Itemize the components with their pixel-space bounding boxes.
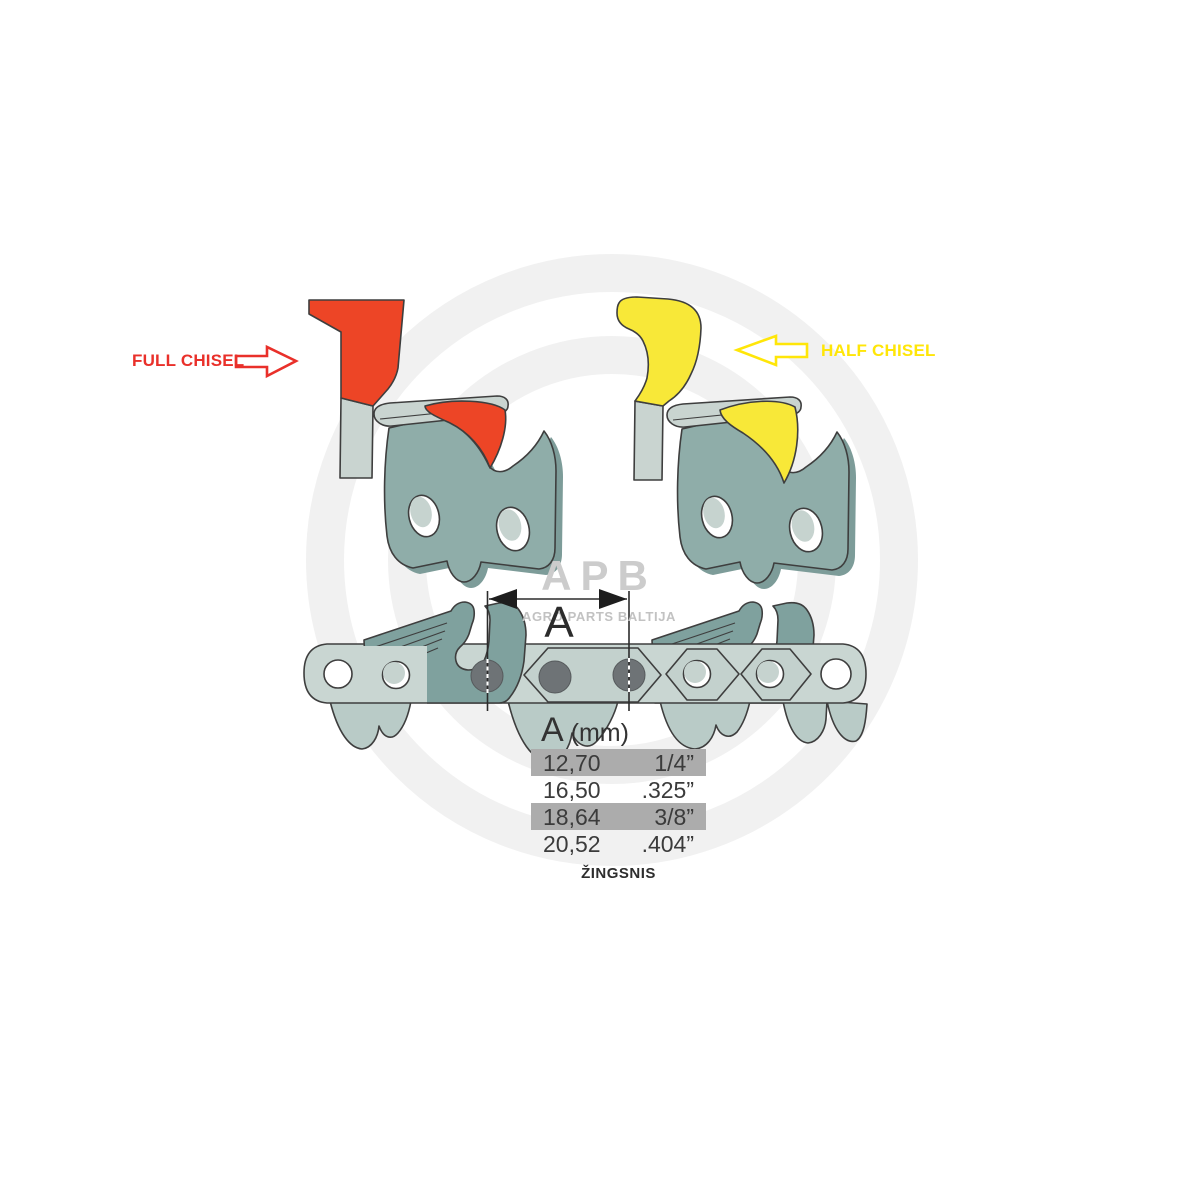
pitch-table-header: A (mm) <box>541 711 629 750</box>
pitch-table-header-letter: A <box>541 711 564 749</box>
profile-shank <box>634 401 663 480</box>
pitch-inch: 3/8” <box>631 804 706 830</box>
half-chisel-label: HALF CHISEL <box>821 341 936 361</box>
pitch-inch: .325” <box>631 777 706 803</box>
full-chisel-arrow-icon <box>236 347 296 376</box>
pitch-inch: .404” <box>631 831 706 857</box>
pitch-table-header-unit: (mm) <box>571 719 629 747</box>
full-chisel-label: FULL CHISEL <box>132 351 244 371</box>
pitch-mm: 12,70 <box>531 750 631 776</box>
chainsaw-chain-diagram: APB AGRO PARTS BALTIJA FULL CHISEL HALF … <box>0 0 1188 1188</box>
profile-shank <box>340 398 373 478</box>
pitch-inch: 1/4” <box>631 750 706 776</box>
watermark-subtitle: AGRO PARTS BALTIJA <box>494 609 704 624</box>
pitch-caption: ŽINGSNIS <box>531 865 706 882</box>
pitch-mm: 18,64 <box>531 804 631 830</box>
pitch-mm: 20,52 <box>531 831 631 857</box>
table-row: 12,70 1/4” <box>531 749 706 776</box>
table-row: 20,52 .404” <box>531 830 706 857</box>
pitch-mm: 16,50 <box>531 777 631 803</box>
watermark-logo: APB <box>494 552 704 600</box>
pitch-dimension-label: A <box>538 598 580 648</box>
table-row: 18,64 3/8” <box>531 803 706 830</box>
pitch-table: 12,70 1/4” 16,50 .325” 18,64 3/8” 20,52 … <box>531 749 706 857</box>
table-row: 16,50 .325” <box>531 776 706 803</box>
chain-rivets <box>471 659 645 693</box>
